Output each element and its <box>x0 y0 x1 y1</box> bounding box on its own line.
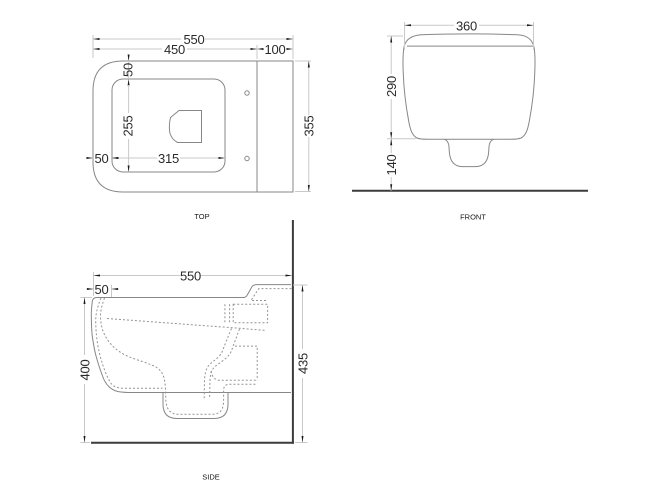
svg-text:255: 255 <box>121 115 136 136</box>
svg-text:360: 360 <box>456 18 477 33</box>
svg-text:50: 50 <box>94 151 108 166</box>
svg-text:435: 435 <box>295 353 310 374</box>
svg-text:50: 50 <box>94 282 108 297</box>
svg-text:400: 400 <box>77 359 92 380</box>
svg-text:290: 290 <box>384 76 399 97</box>
svg-text:50: 50 <box>121 63 136 77</box>
svg-text:FRONT: FRONT <box>460 213 486 222</box>
svg-text:SIDE: SIDE <box>202 473 220 482</box>
svg-text:550: 550 <box>183 32 204 47</box>
svg-text:TOP: TOP <box>194 212 209 221</box>
svg-text:315: 315 <box>158 151 179 166</box>
svg-text:140: 140 <box>384 154 399 175</box>
svg-text:550: 550 <box>180 269 201 284</box>
svg-text:450: 450 <box>164 42 185 57</box>
svg-text:100: 100 <box>264 42 285 57</box>
svg-text:355: 355 <box>302 115 317 136</box>
